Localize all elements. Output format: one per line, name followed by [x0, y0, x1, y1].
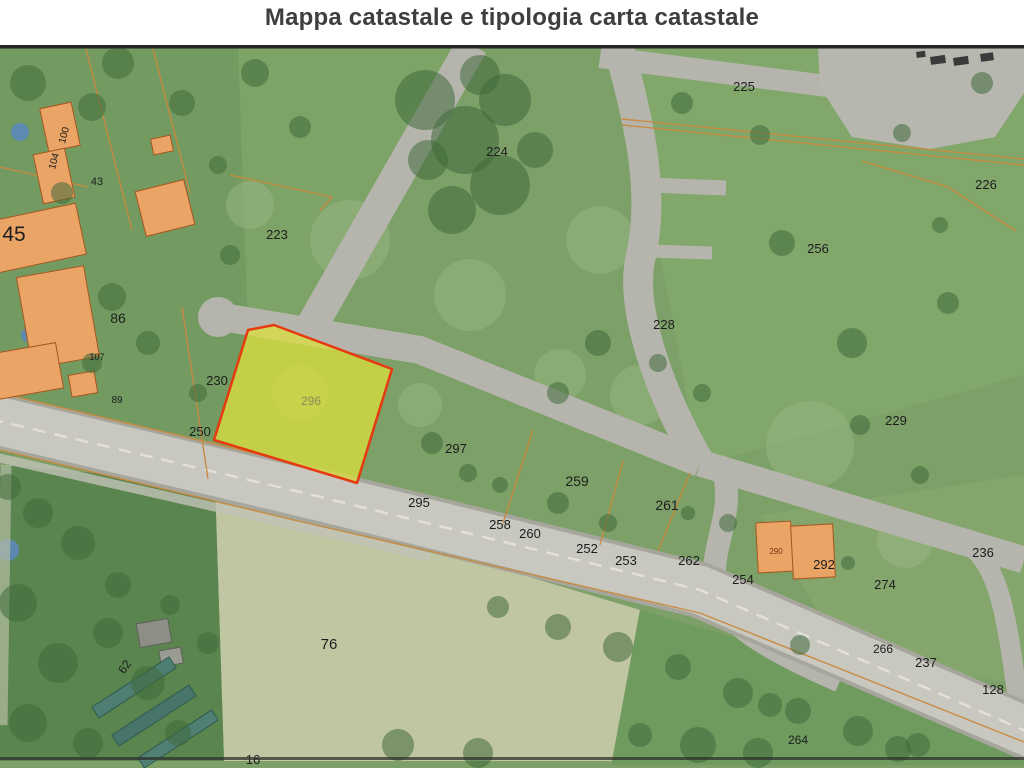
parcel-label-258: 258	[489, 517, 511, 532]
parcel-label-128: 128	[982, 682, 1004, 697]
parcel-label-295: 295	[408, 495, 430, 510]
parcel-label-292: 292	[813, 557, 835, 572]
map-bottom-border	[0, 757, 1024, 760]
parcel-label-252: 252	[576, 541, 598, 556]
parcel-label-236: 236	[972, 545, 994, 560]
parcel-label-296: 296	[301, 394, 321, 408]
parcel-label-45: 45	[2, 223, 25, 246]
cadastral-map-image: 1001044345861078923025029622322422522625…	[0, 45, 1024, 768]
parked-car	[916, 51, 926, 58]
parcel-label-225: 225	[733, 79, 755, 94]
parcel-label-237: 237	[915, 655, 937, 670]
parcel-label-43: 43	[91, 176, 103, 188]
parcel-label-262: 262	[678, 553, 700, 568]
parcel-label-86: 86	[110, 310, 126, 326]
parcel-label-261: 261	[655, 497, 679, 513]
parcel-label-254: 254	[732, 572, 754, 587]
parcel-label-224: 224	[486, 144, 508, 159]
parcel-label-230: 230	[206, 373, 228, 388]
parcel-label-250: 250	[189, 424, 211, 439]
parcel-label-266: 266	[873, 642, 893, 656]
parcel-label-290: 290	[769, 547, 783, 556]
parcel-label-264: 264	[788, 733, 808, 747]
page-title: Mappa catastale e tipologia carta catast…	[0, 4, 1024, 32]
parcel-label-297: 297	[445, 441, 467, 456]
parcel-label-253: 253	[615, 553, 637, 568]
parcel-label-260: 260	[519, 526, 541, 541]
aerial-map-svg: 1001044345861078923025029622322422522625…	[0, 45, 1024, 768]
parcel-label-76: 76	[321, 636, 338, 653]
parcel-label-259: 259	[565, 473, 589, 489]
parcel-label-107: 107	[89, 352, 104, 362]
parcel-label-226: 226	[975, 177, 997, 192]
parcel-label-89: 89	[111, 395, 123, 406]
parcel-label-228: 228	[653, 317, 675, 332]
map-top-border	[0, 45, 1024, 49]
parcel-label-256: 256	[807, 241, 829, 256]
parcel-label-274: 274	[874, 577, 896, 592]
parcel-label-229: 229	[885, 413, 907, 428]
parcel-label-223: 223	[266, 227, 288, 242]
listing-page: Mappa catastale e tipologia carta catast…	[0, 0, 1024, 768]
